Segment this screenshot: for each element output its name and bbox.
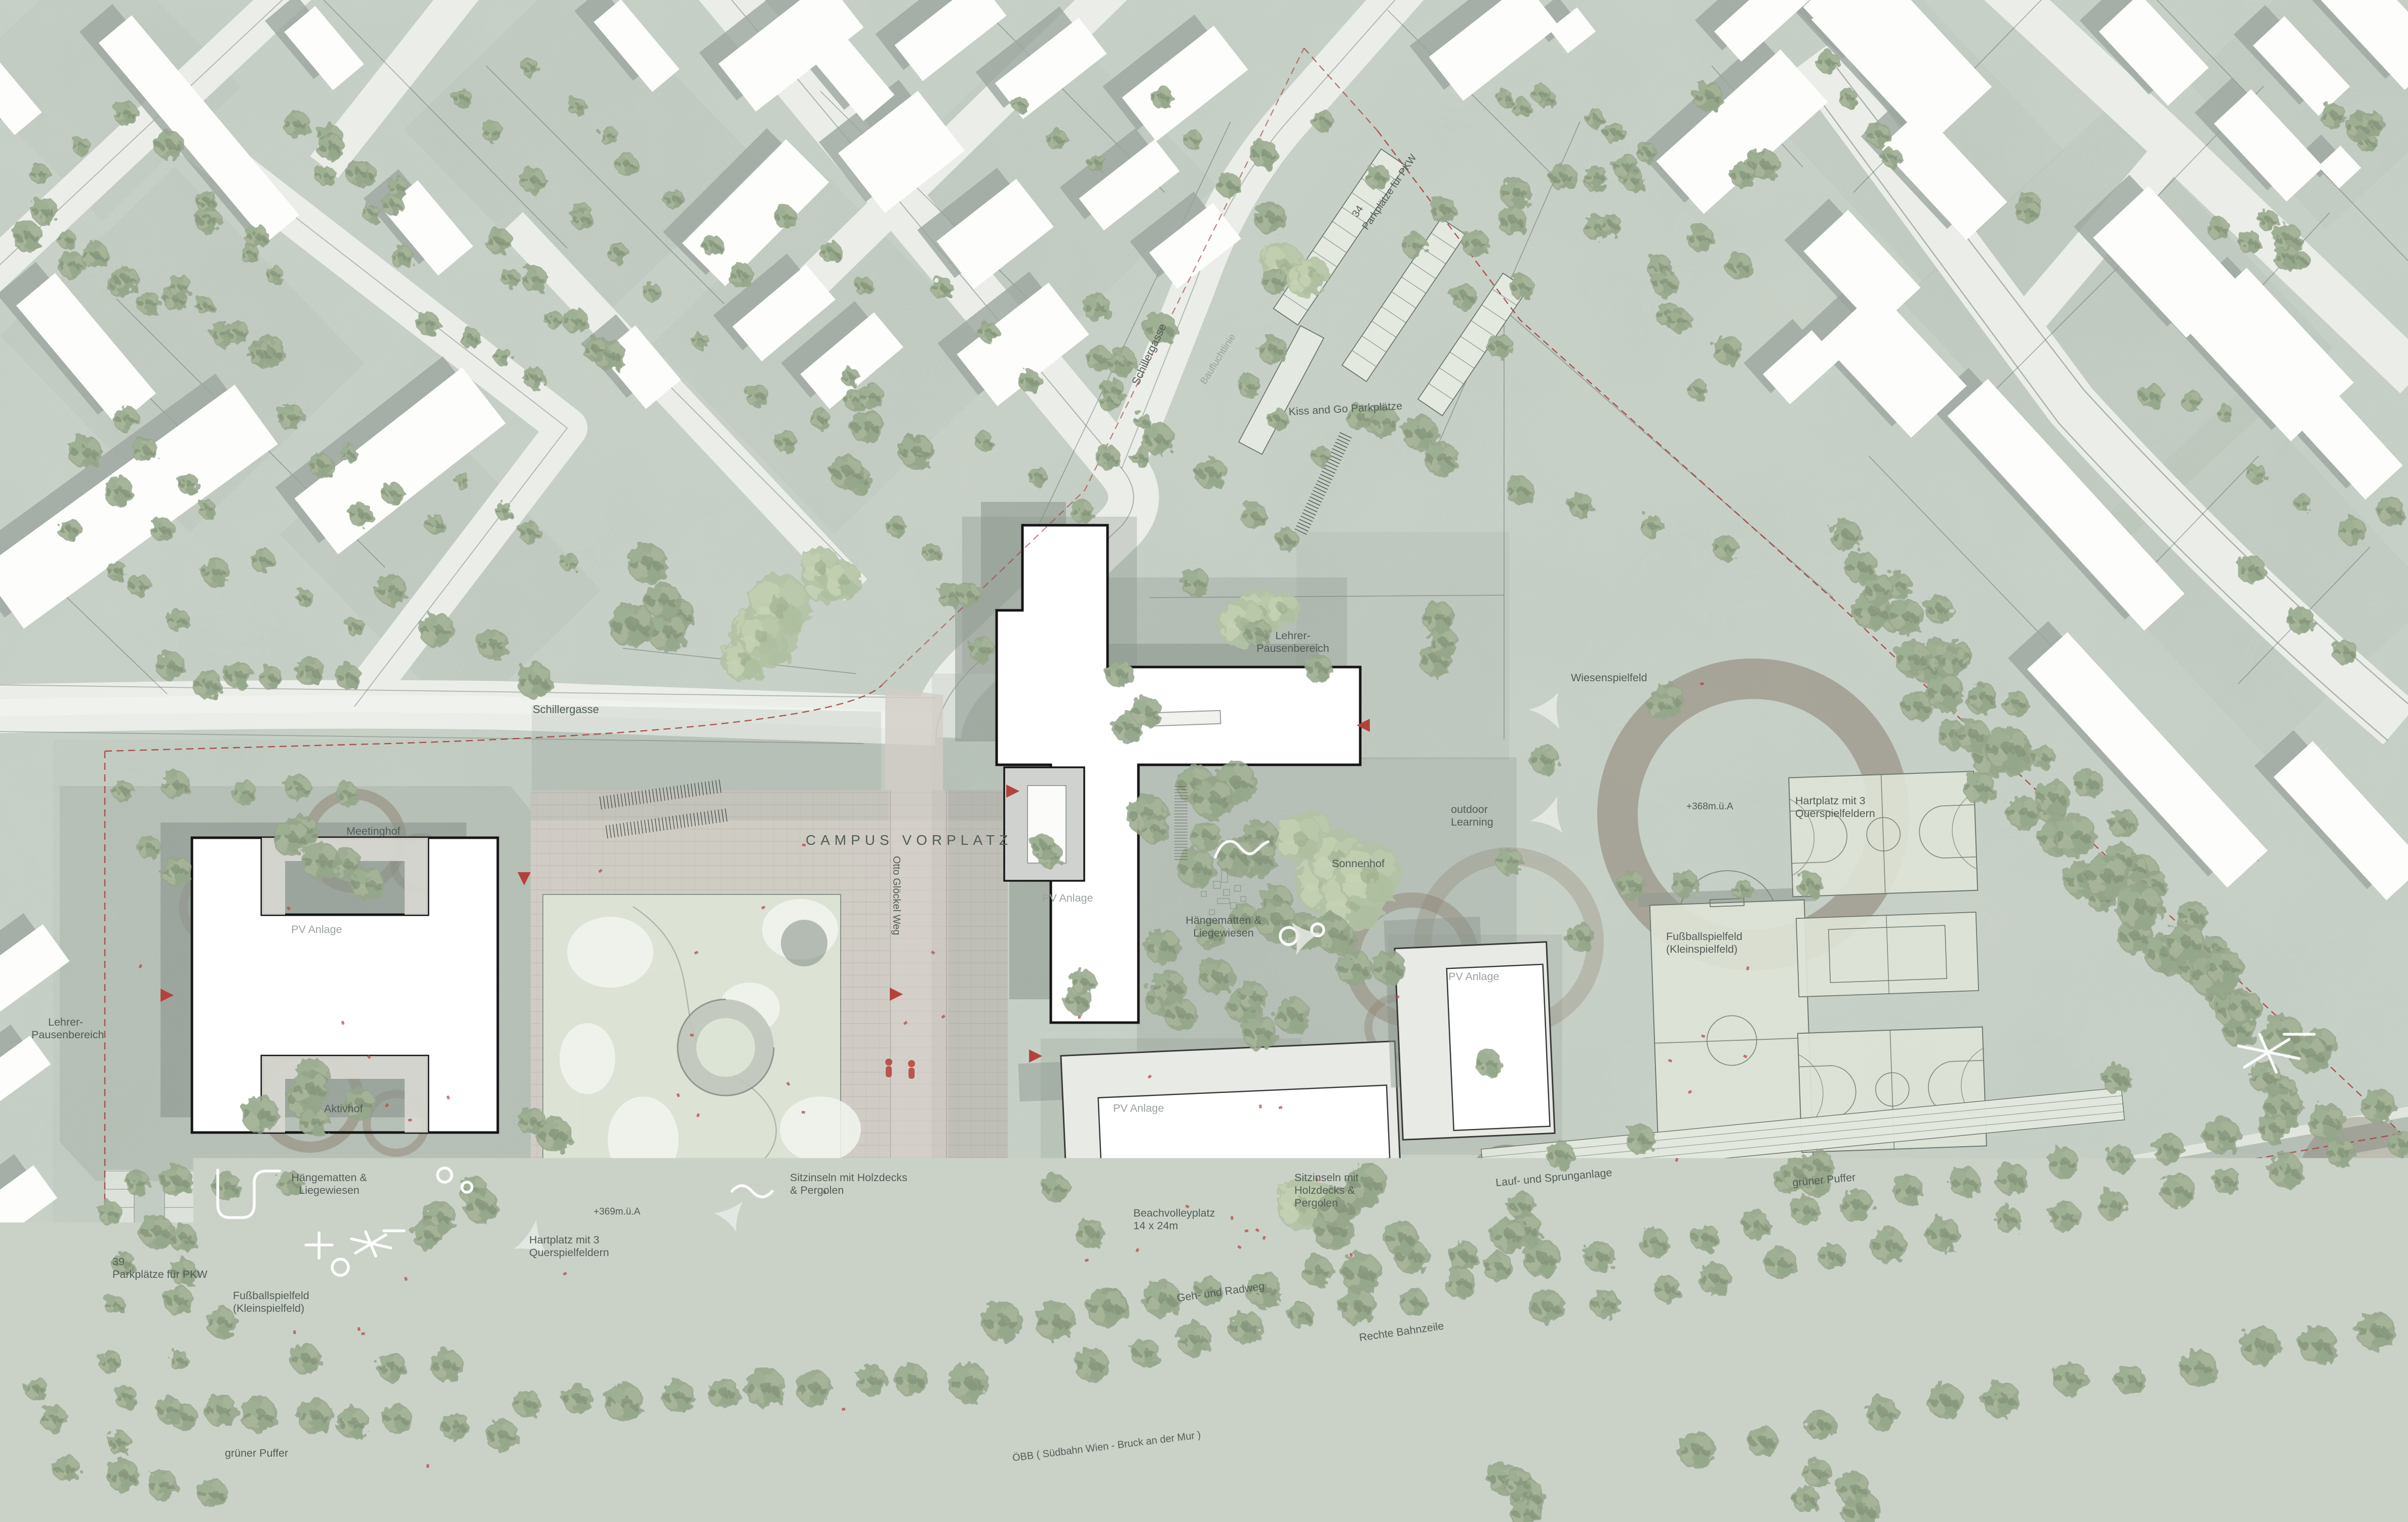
svg-text:Pausenbereich: Pausenbereich: [31, 1029, 104, 1041]
svg-text:39: 39: [112, 1256, 125, 1268]
svg-text:& Pergolen: & Pergolen: [790, 1184, 844, 1196]
svg-text:Hängematten &: Hängematten &: [1186, 914, 1261, 926]
svg-text:Sitzinseln mit: Sitzinseln mit: [1294, 1172, 1359, 1184]
svg-text:PV Anlage: PV Anlage: [1042, 892, 1093, 904]
svg-text:14 x 24m: 14 x 24m: [1133, 1220, 1178, 1232]
svg-text:Hängematten &: Hängematten &: [291, 1172, 367, 1184]
svg-text:PV Anlage: PV Anlage: [1448, 970, 1499, 983]
svg-text:Querspielfeldern: Querspielfeldern: [529, 1246, 609, 1259]
svg-text:Lehrer-: Lehrer-: [48, 1016, 83, 1028]
svg-text:+368m.ü.A: +368m.ü.A: [1686, 801, 1733, 812]
svg-text:CAMPUS VORPLATZ: CAMPUS VORPLATZ: [806, 832, 1012, 848]
svg-text:Lehrer-: Lehrer-: [1275, 630, 1310, 642]
svg-text:BUS: BUS: [894, 1241, 919, 1253]
svg-text:Aktivhof: Aktivhof: [324, 1103, 363, 1115]
svg-text:Parkplätze für PKW: Parkplätze für PKW: [112, 1268, 208, 1280]
svg-text:grüner Puffer: grüner Puffer: [225, 1447, 288, 1459]
svg-text:Schillergasse: Schillergasse: [533, 703, 599, 716]
svg-text:Liegewiesen: Liegewiesen: [1193, 927, 1254, 939]
svg-text:Sonnenhof: Sonnenhof: [1332, 857, 1385, 870]
svg-text:Wiesenspielfeld: Wiesenspielfeld: [1571, 672, 1647, 684]
svg-text:Hartplatz mit 3: Hartplatz mit 3: [529, 1234, 600, 1246]
svg-text:Fußballspielfeld: Fußballspielfeld: [233, 1290, 309, 1302]
svg-text:Fußballspielfeld: Fußballspielfeld: [1666, 930, 1743, 943]
svg-text:(Kleinspielfeld): (Kleinspielfeld): [233, 1302, 304, 1314]
svg-text:outdoor: outdoor: [1451, 803, 1488, 815]
svg-text:Hartplatz mit 3: Hartplatz mit 3: [1795, 795, 1866, 807]
svg-text:PV Anlage: PV Anlage: [291, 923, 342, 935]
svg-text:Meetinghof: Meetinghof: [346, 825, 400, 837]
svg-text:Holzdecks &: Holzdecks &: [1294, 1184, 1355, 1196]
svg-text:(Kleinspielfeld): (Kleinspielfeld): [1666, 943, 1738, 955]
svg-text:+369m.ü.A: +369m.ü.A: [594, 1206, 641, 1217]
svg-text:Otto Glöckel Weg: Otto Glöckel Weg: [891, 856, 902, 935]
svg-text:Learning: Learning: [1451, 816, 1493, 828]
svg-text:Sitzinseln mit Holzdecks: Sitzinseln mit Holzdecks: [790, 1172, 907, 1184]
svg-text:Liegewiesen: Liegewiesen: [299, 1184, 360, 1196]
svg-text:Querspielfeldern: Querspielfeldern: [1795, 807, 1875, 819]
svg-text:PV Anlage: PV Anlage: [1113, 1102, 1164, 1114]
svg-text:Pergolen: Pergolen: [1294, 1197, 1338, 1209]
svg-text:Beachvolleyplatz: Beachvolleyplatz: [1133, 1207, 1215, 1219]
svg-text:Pausenbereich: Pausenbereich: [1256, 642, 1329, 654]
